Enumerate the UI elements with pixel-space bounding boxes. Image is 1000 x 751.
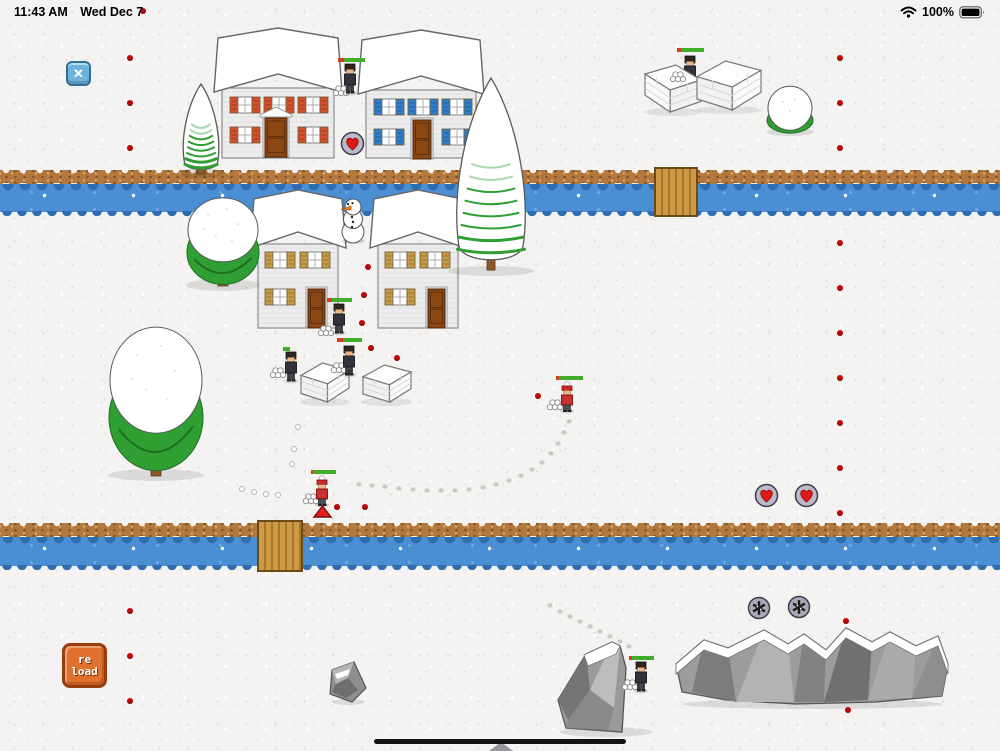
character-red-left[interactable] [314, 476, 330, 506]
footprint [481, 486, 485, 489]
reload-label-line2: load [65, 666, 104, 678]
red-dot [127, 100, 133, 106]
health-bar [337, 338, 362, 342]
character-dark-top[interactable] [342, 64, 358, 94]
snowball [263, 491, 269, 497]
health-bar [629, 656, 654, 660]
footprint [598, 630, 602, 633]
snowball [239, 486, 245, 492]
reload-button[interactable]: re load [62, 643, 107, 688]
red-dot [837, 145, 843, 151]
health-bar [556, 376, 583, 380]
round-tree-big [108, 324, 204, 480]
reload-label-line1: re [65, 654, 104, 666]
footprint [530, 468, 534, 471]
snowball [289, 461, 295, 467]
red-dot [837, 100, 843, 106]
health-bar [677, 48, 704, 52]
snowball [251, 489, 257, 495]
footprint [439, 489, 443, 492]
bridge [257, 520, 303, 572]
red-dot [368, 345, 374, 351]
character-dark-mid-left[interactable] [283, 352, 299, 382]
footprint [519, 474, 523, 477]
red-dot [140, 8, 146, 14]
footprint [507, 479, 511, 482]
red-dot [837, 240, 843, 246]
footprint [556, 442, 560, 445]
snowflake-pickup[interactable] [747, 596, 771, 620]
river-water [0, 537, 1000, 566]
round-tree-top [186, 196, 260, 290]
footprint [540, 461, 544, 464]
red-dot [334, 504, 340, 510]
snowball-pile [670, 70, 686, 83]
red-dot [535, 393, 541, 399]
footprint [397, 487, 401, 490]
snow-bush [766, 88, 814, 134]
red-dot [394, 355, 400, 361]
health-bar-damage [327, 298, 332, 302]
house-red-shutters [218, 28, 338, 160]
character-dark-rock[interactable] [633, 662, 649, 692]
red-dot [127, 145, 133, 151]
health-bar-damage [311, 470, 313, 474]
footprint [411, 488, 415, 491]
footprint [453, 489, 457, 492]
footprint [562, 431, 566, 434]
footprint [558, 610, 562, 613]
health-bar [327, 298, 352, 302]
pine-tree-small [181, 84, 221, 176]
character-dark-house[interactable] [331, 304, 347, 334]
red-dot [845, 707, 851, 713]
footprint [370, 484, 374, 487]
red-dot [127, 653, 133, 659]
red-dot [837, 465, 843, 471]
snowball [295, 424, 301, 430]
footprint [548, 604, 552, 607]
river-edge [0, 565, 1000, 570]
home-indicator[interactable] [374, 739, 626, 744]
close-icon: ✕ [73, 66, 84, 81]
character-red-right[interactable] [559, 382, 575, 412]
red-dot [837, 55, 843, 61]
river [0, 523, 1000, 570]
house-tan-left [254, 190, 342, 330]
footprint [357, 483, 361, 486]
red-dot [837, 375, 843, 381]
health-bar-damage [677, 48, 681, 52]
snowflake-pickup[interactable] [787, 595, 811, 619]
red-dot [361, 292, 367, 298]
footprint [567, 420, 571, 423]
house-tan-right [374, 190, 462, 330]
footprint [568, 615, 572, 618]
red-flag-triangle [314, 506, 331, 518]
health-bar [311, 470, 336, 474]
red-dot [837, 420, 843, 426]
heart-pickup[interactable] [340, 131, 365, 156]
bridge [654, 167, 698, 217]
small-rock [328, 660, 368, 704]
health-bar-damage [338, 58, 344, 62]
health-bar-damage [337, 338, 343, 342]
footprint [494, 483, 498, 486]
footprint [578, 620, 582, 623]
health-bar-damage [556, 376, 559, 380]
health-bar [283, 347, 290, 351]
snowball [275, 492, 281, 498]
red-dot [837, 330, 843, 336]
snowman [334, 196, 372, 244]
heart-pickup[interactable] [754, 483, 779, 508]
footprint [425, 489, 429, 492]
snow-fort-block [362, 364, 412, 404]
heart-pickup[interactable] [794, 483, 819, 508]
red-dot [127, 608, 133, 614]
footprint [467, 488, 471, 491]
mountain-rocks [676, 620, 948, 708]
red-dot [843, 618, 849, 624]
footprint [383, 485, 387, 488]
snowball [291, 446, 297, 452]
river-bank [0, 523, 1000, 537]
pine-tree-tall [452, 78, 530, 274]
snow-fort-block [696, 60, 762, 112]
red-dot [127, 55, 133, 61]
red-dot [359, 320, 365, 326]
red-dot [362, 504, 368, 510]
footprint [549, 452, 553, 455]
red-dot [365, 264, 371, 270]
character-dark-mid[interactable] [341, 346, 357, 376]
game-field[interactable] [0, 0, 1000, 750]
red-dot [837, 510, 843, 516]
red-dot [837, 285, 843, 291]
health-bar [338, 58, 365, 62]
footprint [588, 625, 592, 628]
health-bar-damage [629, 656, 632, 660]
red-dot [127, 698, 133, 704]
close-button[interactable]: ✕ [66, 61, 91, 86]
